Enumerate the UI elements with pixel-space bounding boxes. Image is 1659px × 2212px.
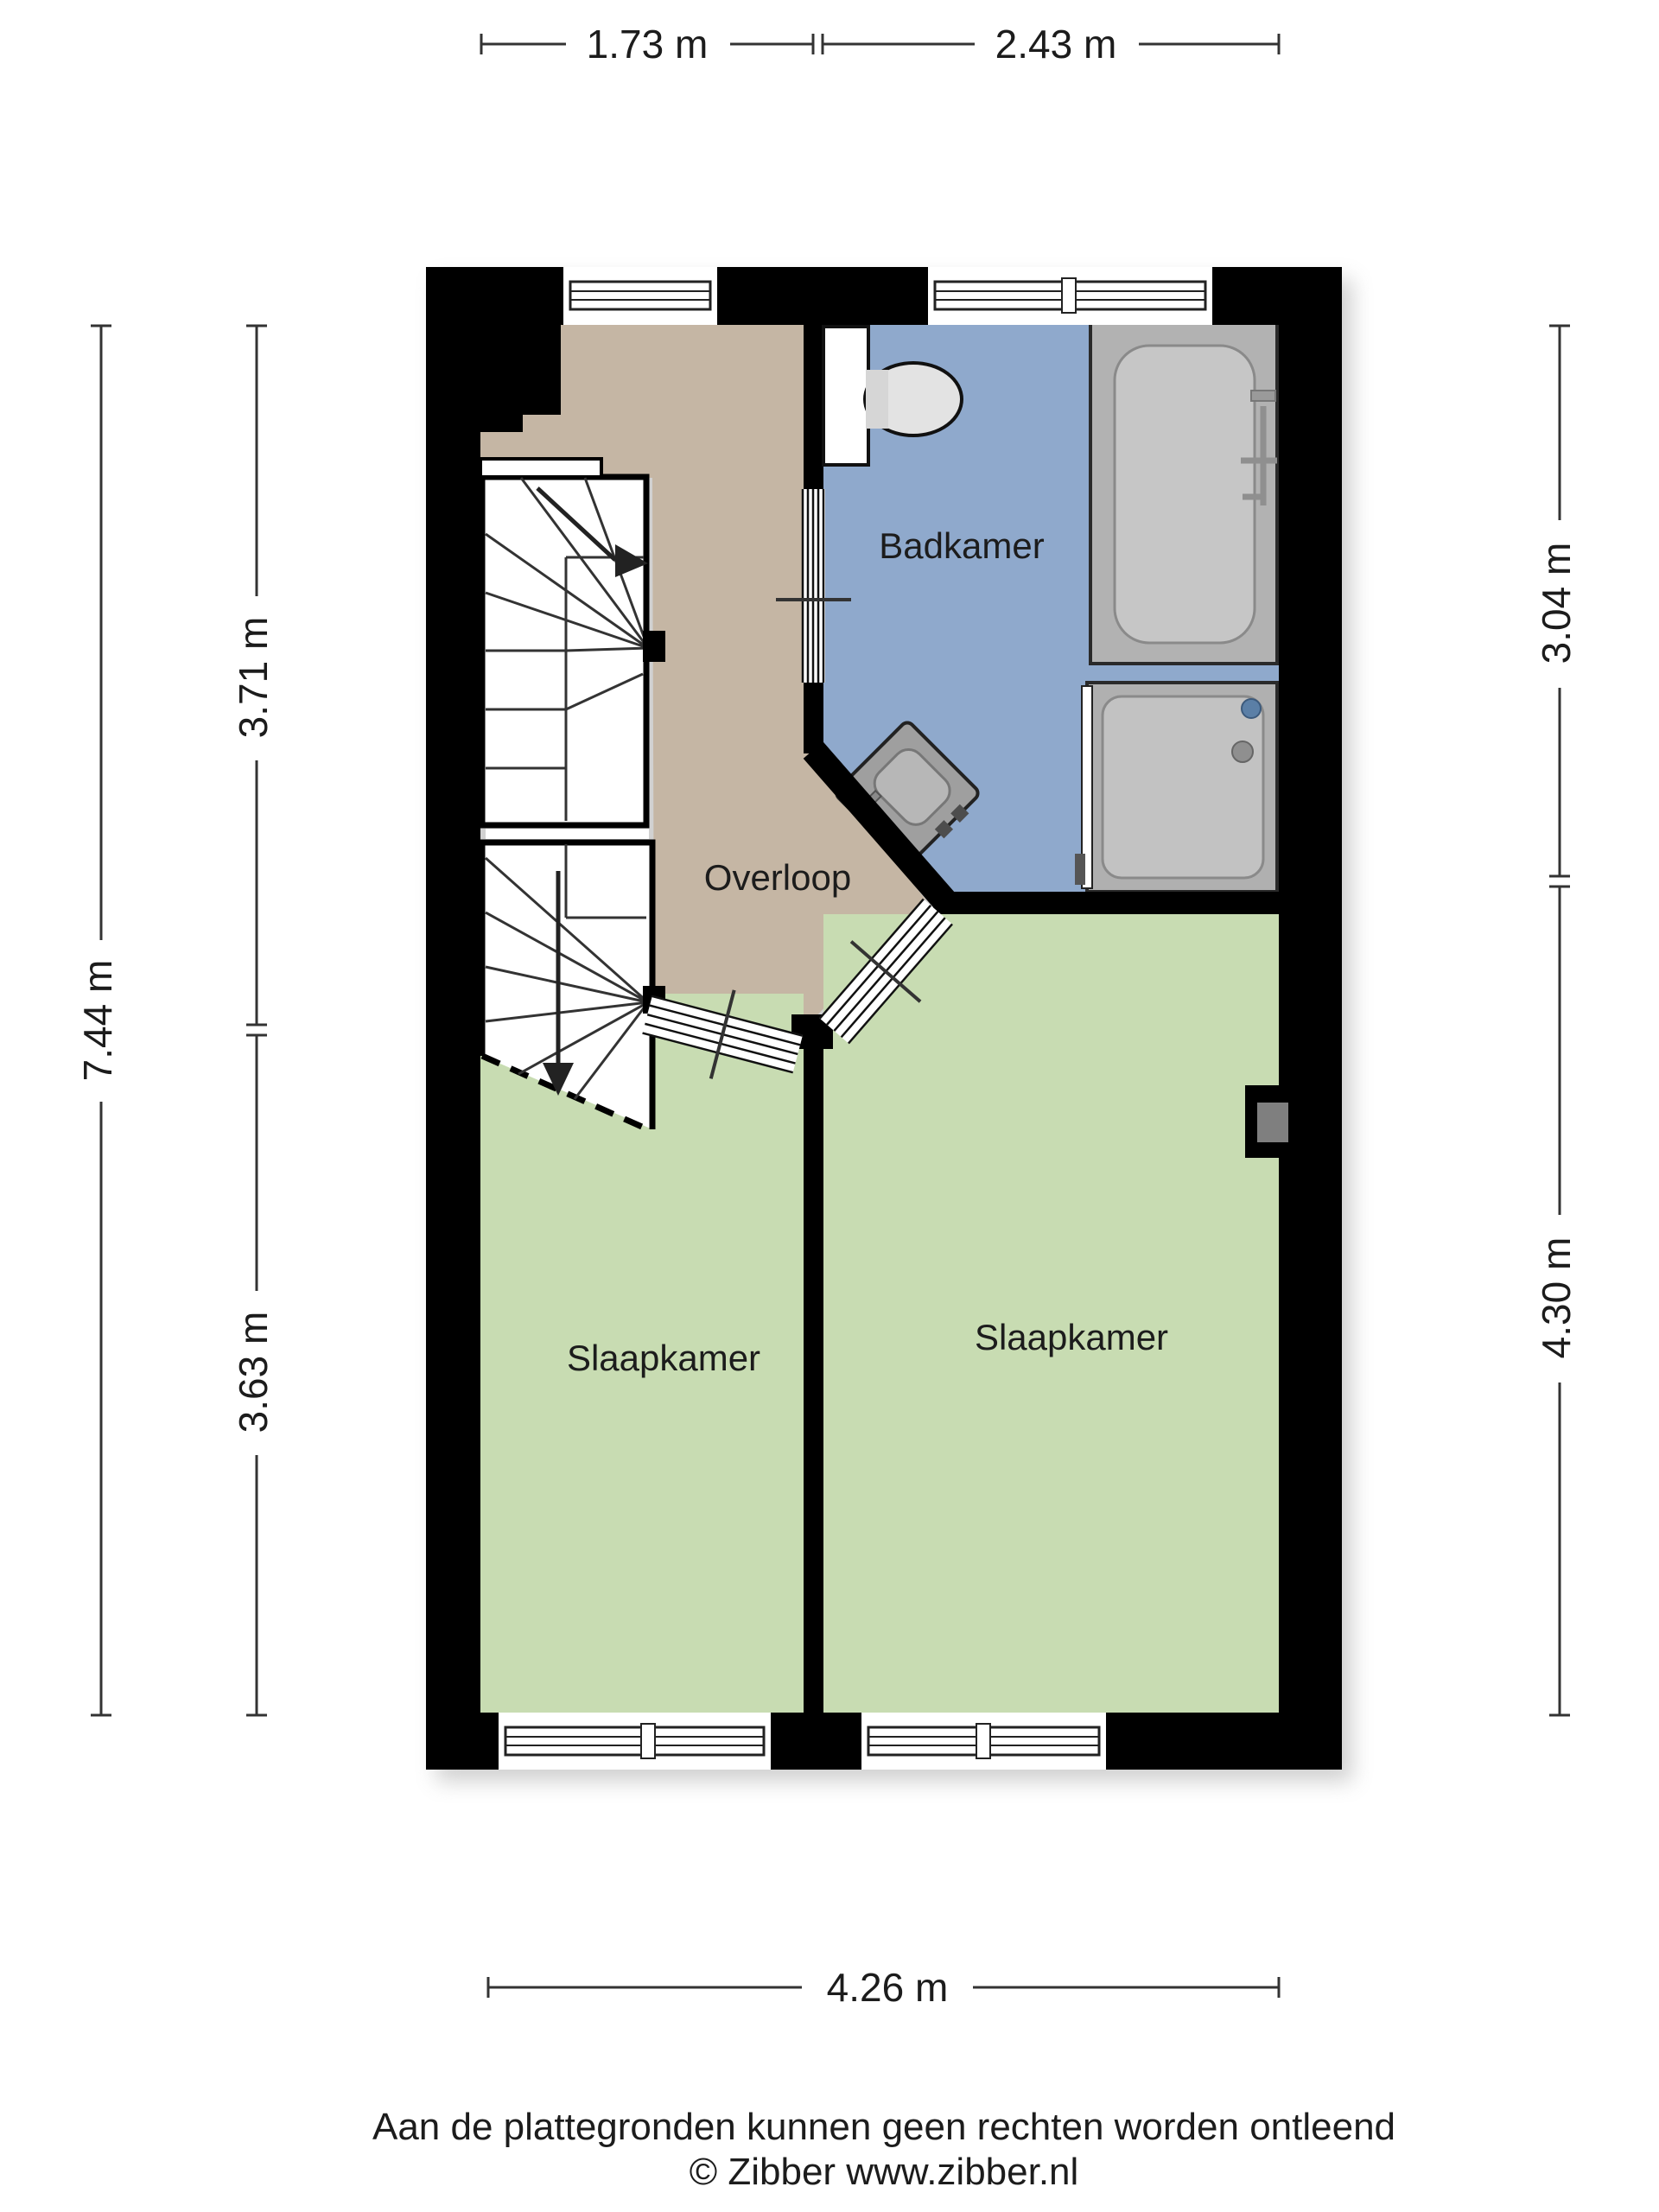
window-mullion (1062, 278, 1076, 313)
dim-left-inner-top: 3.71 m (231, 617, 276, 739)
dim-top-right: 2.43 m (995, 22, 1117, 67)
window-top-bathroom (928, 267, 1212, 325)
wall-bathroom-bedroom (933, 892, 1279, 914)
bathtub (1090, 322, 1277, 664)
window-bottom-bedroom-left (499, 1713, 771, 1770)
dim-left-outer: 7.44 m (75, 960, 120, 1082)
floorplan-canvas: Badkamer Overloop Slaapkamer Slaapkamer (0, 0, 1659, 2212)
label-bedroom-right: Slaapkamer (975, 1317, 1168, 1357)
label-landing: Overloop (704, 857, 851, 898)
window-bottom-bedroom-right (861, 1713, 1106, 1770)
bathtub-tap-head (1251, 391, 1275, 401)
wall-landing-bathroom-lower (804, 683, 823, 753)
wall-left (426, 267, 480, 1770)
dim-bottom: 4.26 m (827, 1965, 949, 2010)
dim-left-inner-bottom: 3.63 m (231, 1312, 276, 1433)
stairs-mid-landing (486, 829, 649, 839)
shower (1075, 683, 1277, 892)
chimney-niche-inset (1257, 1103, 1288, 1142)
wall-corner-topleft (426, 267, 561, 415)
wall-corner-topleft-step (426, 413, 523, 432)
window-mullion (976, 1724, 990, 1758)
toilet-tank (823, 327, 868, 465)
shower-door-handle (1075, 854, 1085, 885)
staircase (480, 459, 665, 1130)
footer-copyright: © Zibber www.zibber.nl (690, 2151, 1079, 2193)
dim-right-top: 3.04 m (1534, 543, 1579, 664)
room-bedroom-right-floor (823, 914, 1279, 1713)
footer-disclaimer: Aan de plattegronden kunnen geen rechten… (372, 2106, 1395, 2148)
stairs-newel-post (643, 631, 665, 662)
dim-right-bottom: 4.30 m (1534, 1237, 1579, 1359)
dim-top-left: 1.73 m (587, 22, 709, 67)
shower-drain (1242, 699, 1261, 718)
label-bathroom: Badkamer (879, 525, 1044, 566)
shower-head (1232, 741, 1253, 762)
wall-right (1279, 267, 1342, 1770)
window-mullion (641, 1724, 655, 1758)
wall-landing-bathroom-upper (804, 325, 823, 489)
floorplan-page: Badkamer Overloop Slaapkamer Slaapkamer (0, 0, 1659, 2212)
label-bedroom-left: Slaapkamer (567, 1338, 760, 1378)
wall-between-bedrooms (804, 1047, 823, 1713)
window-top-landing (563, 267, 717, 325)
stairs-top-landing (480, 459, 601, 477)
